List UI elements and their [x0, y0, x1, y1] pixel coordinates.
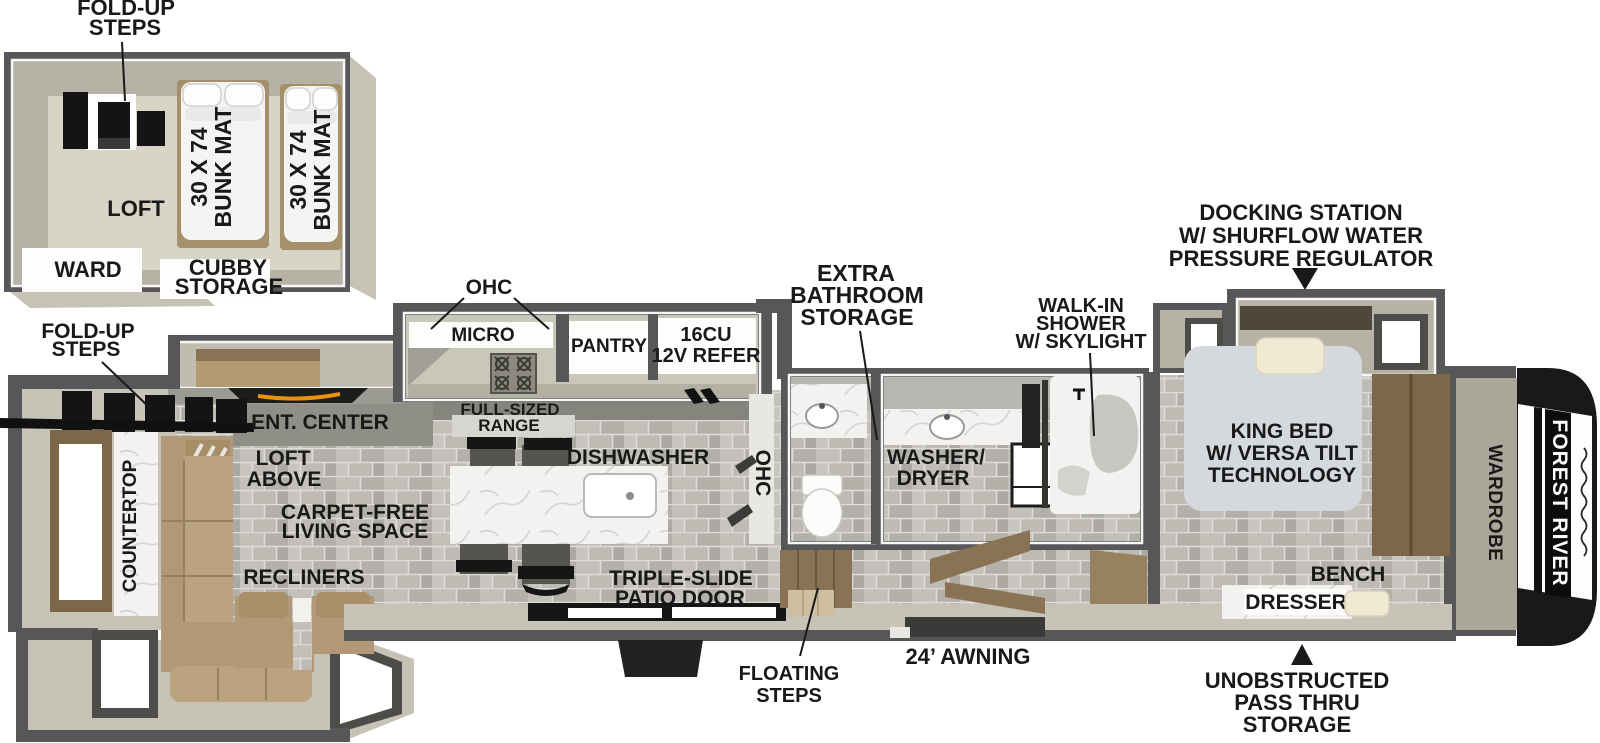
- svg-text:W/ SKYLIGHT: W/ SKYLIGHT: [1015, 331, 1146, 353]
- svg-text:LOFT: LOFT: [256, 447, 311, 470]
- svg-text:FOREST RIVER: FOREST RIVER: [1548, 419, 1571, 586]
- svg-text:MICRO: MICRO: [451, 325, 514, 346]
- svg-text:BUNK MAT: BUNK MAT: [309, 110, 335, 231]
- svg-text:LOFT: LOFT: [107, 196, 165, 221]
- svg-text:W/ SHURFLOW WATER: W/ SHURFLOW WATER: [1179, 223, 1423, 248]
- svg-text:PRESSURE REGULATOR: PRESSURE REGULATOR: [1169, 246, 1434, 271]
- svg-text:DISHWASHER: DISHWASHER: [567, 446, 709, 469]
- svg-text:DOCKING STATION: DOCKING STATION: [1199, 200, 1402, 225]
- svg-text:STORAGE: STORAGE: [175, 274, 283, 299]
- svg-text:24’ AWNING: 24’ AWNING: [905, 644, 1030, 669]
- svg-text:PATIO DOOR: PATIO DOOR: [615, 587, 745, 610]
- svg-text:RANGE: RANGE: [478, 416, 539, 435]
- svg-text:ENT. CENTER: ENT. CENTER: [251, 411, 389, 434]
- svg-text:OHC: OHC: [466, 276, 513, 299]
- svg-text:ABOVE: ABOVE: [247, 468, 322, 491]
- svg-text:STORAGE: STORAGE: [800, 304, 913, 330]
- svg-text:OHC: OHC: [751, 450, 774, 497]
- svg-text:WARD: WARD: [54, 257, 121, 282]
- svg-text:DRESSER: DRESSER: [1245, 591, 1347, 614]
- svg-text:FLOATING: FLOATING: [739, 663, 840, 685]
- svg-text:RECLINERS: RECLINERS: [243, 566, 364, 589]
- svg-text:STEPS: STEPS: [89, 15, 161, 40]
- svg-text:30 X 74: 30 X 74: [285, 130, 311, 209]
- svg-text:BUNK MAT: BUNK MAT: [210, 107, 236, 228]
- svg-text:PANTRY: PANTRY: [571, 336, 647, 357]
- svg-text:KING BED: KING BED: [1231, 420, 1334, 443]
- svg-text:BENCH: BENCH: [1311, 563, 1386, 586]
- svg-text:DRYER: DRYER: [897, 467, 970, 490]
- svg-text:12V REFER: 12V REFER: [652, 345, 761, 367]
- svg-text:30 X 74: 30 X 74: [186, 127, 212, 206]
- svg-text:LIVING SPACE: LIVING SPACE: [282, 520, 429, 543]
- svg-text:WARDROBE: WARDROBE: [1484, 445, 1505, 562]
- svg-text:W/ VERSA TILT: W/ VERSA TILT: [1206, 442, 1358, 465]
- svg-text:TECHNOLOGY: TECHNOLOGY: [1208, 464, 1356, 487]
- svg-text:STORAGE: STORAGE: [1243, 712, 1351, 737]
- svg-text:COUNTERTOP: COUNTERTOP: [120, 459, 141, 592]
- svg-text:WASHER/: WASHER/: [887, 446, 985, 469]
- svg-text:STEPS: STEPS: [52, 338, 121, 361]
- svg-text:STEPS: STEPS: [756, 685, 822, 707]
- svg-text:16CU: 16CU: [680, 324, 731, 346]
